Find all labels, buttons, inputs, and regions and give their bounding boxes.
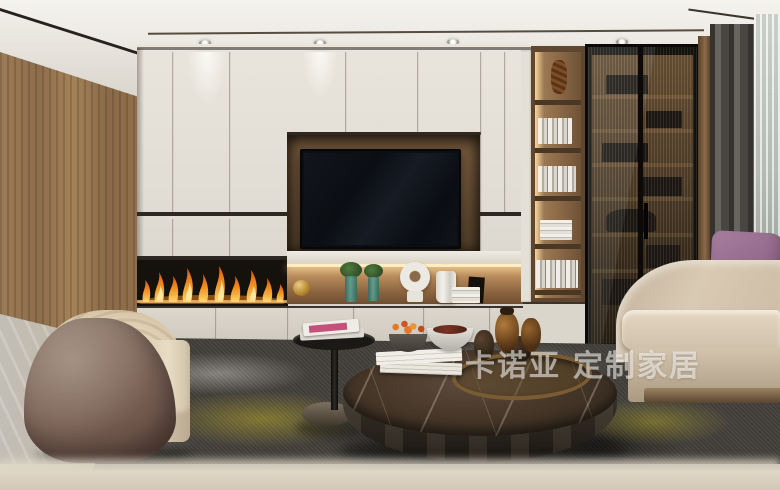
watermark-tagline: 定制家居 [573,341,701,385]
panel-seam [172,219,174,257]
fireplace [137,258,288,310]
magazine-cover-art [309,323,347,333]
light-cone [299,52,341,124]
sculpture-base [407,291,423,302]
panel-seam [480,52,482,258]
wood-grain [0,48,139,348]
tv [300,149,461,249]
books [538,118,572,144]
books [538,166,576,192]
watermark: 卡诺亚定制家居 [465,341,701,385]
light-cone [183,52,231,137]
side-table-stem [331,344,338,410]
plant-vase [345,276,357,302]
panel-groove [137,212,288,216]
panel-seam [504,52,506,214]
amber-vase-lid [500,307,514,315]
watermark-brand: 卡诺亚 [465,341,561,385]
drawer-seam [287,308,289,342]
tv-screen [304,153,457,245]
gold-ball-decor [293,280,310,296]
sculpture-vase [400,262,430,292]
shelf-board [535,196,581,201]
sofa-plinth [644,388,780,403]
panel-seam [172,52,174,214]
plant [364,264,383,278]
magazine-stack [540,220,572,240]
sofa [610,222,780,418]
orange-flowers [386,318,430,338]
books [536,260,578,288]
shelf-board [535,148,581,153]
shelf-board [535,290,581,295]
plant-vase [368,277,379,301]
shelf-board [535,244,581,249]
shelf-board [535,100,581,105]
panel-seam [417,52,419,134]
rope-sculpture [551,60,567,94]
foreground-surface [0,464,780,490]
bookshelf-column [521,44,585,350]
panel-seam [229,52,231,214]
bowl-contents [433,325,467,334]
panel-seam [345,52,347,134]
drawer-gap [137,306,533,308]
drawer-seam [215,308,217,342]
book-stack [452,287,480,303]
flames-graphic [137,260,288,304]
living-room-photo: 卡诺亚定制家居 [0,0,780,490]
panel-seam [229,219,231,257]
